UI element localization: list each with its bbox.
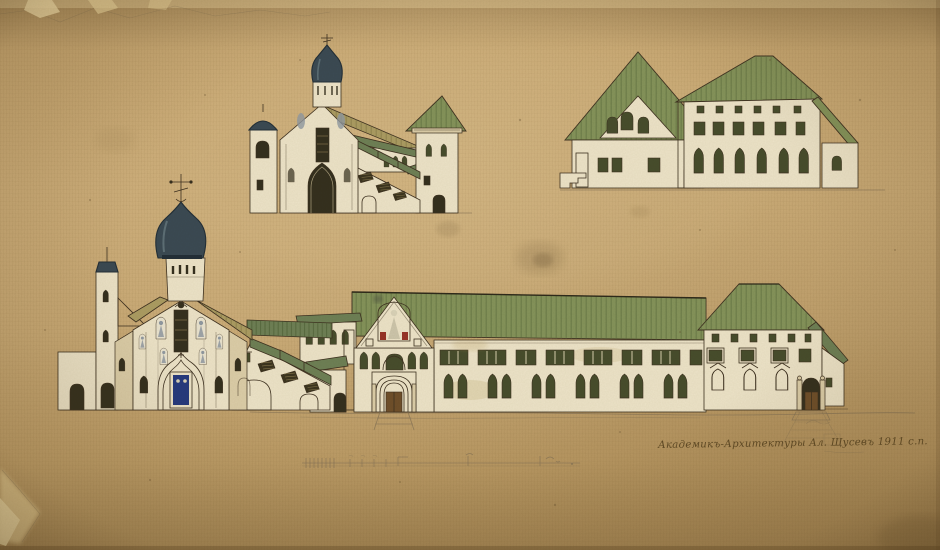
stains-overlay: [0, 0, 940, 550]
artwork-scan: Академикъ-Архитектуры Ал. Щусевъ 1911 с.…: [0, 0, 940, 550]
elevation-drawing-svg: Академикъ-Архитектуры Ал. Щусевъ 1911 с.…: [0, 0, 940, 550]
